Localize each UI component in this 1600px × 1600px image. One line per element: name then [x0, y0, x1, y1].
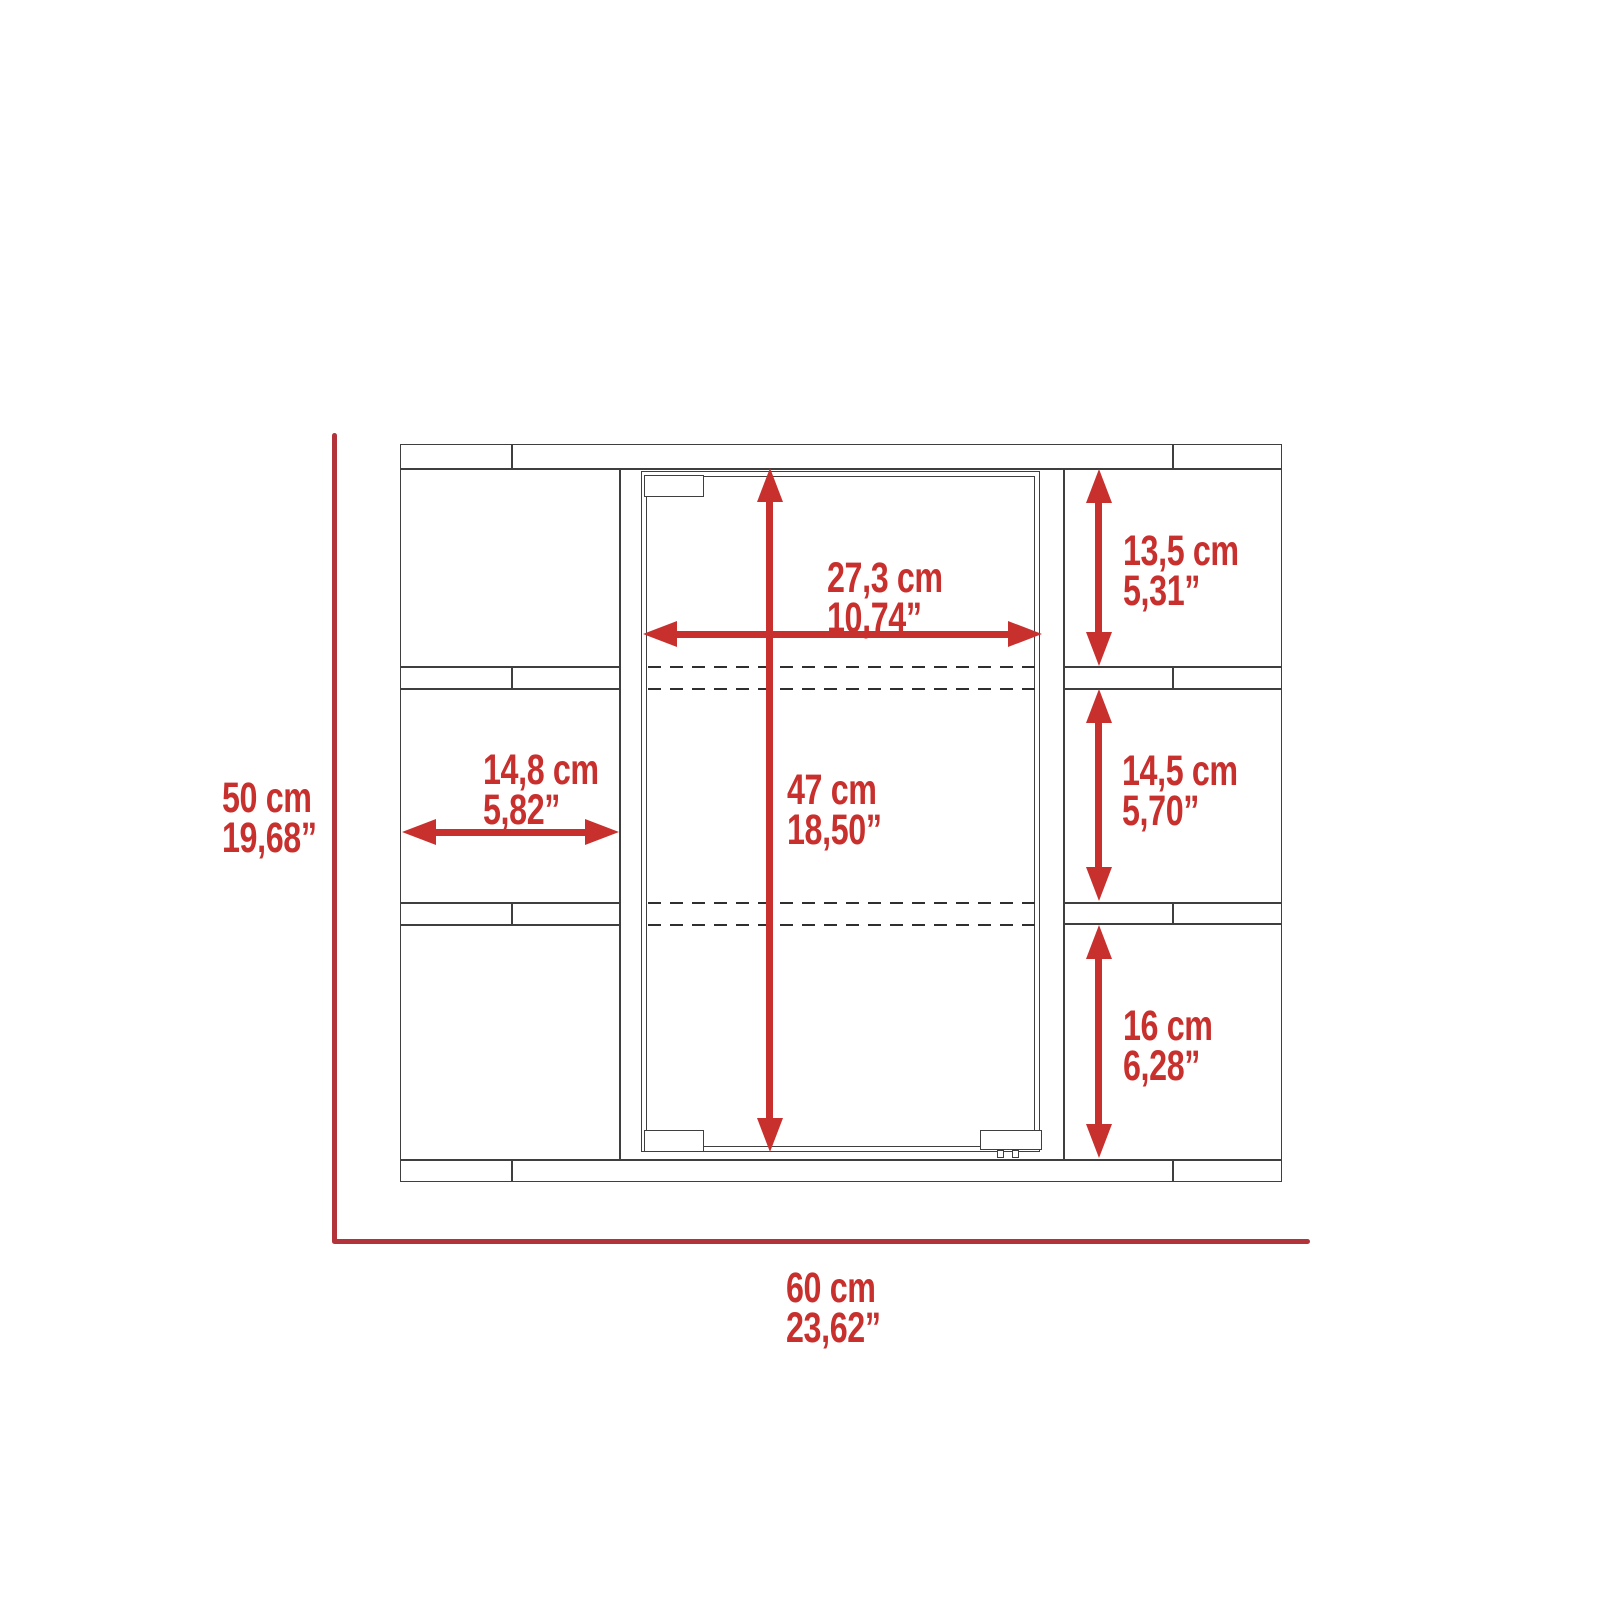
arrow-shaft	[766, 496, 773, 1124]
metric-value: 60 cm	[786, 1268, 881, 1308]
hidden-shelf2-dash-top	[648, 902, 1035, 904]
imperial-value: 6,28”	[1123, 1046, 1213, 1086]
hidden-shelf2-dash-bottom	[648, 924, 1035, 926]
dim-label-left-shelf-width: 14,8 cm 5,82”	[483, 750, 599, 830]
dim-label-overall-height: 50 cm 19,68”	[222, 778, 317, 858]
dim-label-right-top-shelf: 13,5 cm 5,31”	[1123, 531, 1239, 611]
right-shelf1-joint	[1172, 666, 1174, 688]
imperial-value: 18,50”	[787, 810, 882, 850]
imperial-value: 5,70”	[1122, 791, 1238, 831]
height-axis-line	[332, 433, 337, 1243]
imperial-value: 23,62”	[786, 1308, 881, 1348]
metric-value: 14,8 cm	[483, 750, 599, 790]
metric-value: 14,5 cm	[1122, 751, 1238, 791]
diagram-canvas: 50 cm 19,68” 60 cm 23,62” 27,3 cm 10,74”…	[0, 0, 1600, 1600]
imperial-value: 5,31”	[1123, 571, 1239, 611]
metric-value: 13,5 cm	[1123, 531, 1239, 571]
hidden-shelf1-dash-bottom	[648, 688, 1035, 690]
dim-label-right-middle-shelf: 14,5 cm 5,70”	[1122, 751, 1238, 831]
left-column-divider	[619, 468, 621, 1159]
top-panel-joint-left	[511, 444, 513, 468]
imperial-value: 10,74”	[827, 598, 943, 638]
left-shelf2-bottom	[400, 924, 621, 926]
hidden-shelf1-dash-top	[648, 666, 1035, 668]
right-shelf2-joint	[1172, 902, 1174, 923]
top-panel-bottom-line	[400, 468, 1282, 470]
width-axis-line	[332, 1239, 1310, 1244]
left-shelf2-joint	[511, 902, 513, 924]
left-shelf1-joint	[511, 666, 513, 688]
arrowhead-right-icon	[1008, 621, 1042, 647]
dim-label-door-width: 27,3 cm 10,74”	[827, 558, 943, 638]
left-shelf1-bottom	[400, 688, 621, 690]
door-handle-foot-right	[1012, 1150, 1019, 1158]
dim-label-overall-width: 60 cm 23,62”	[786, 1268, 881, 1348]
bottom-panel-top-line	[400, 1159, 1282, 1161]
door-hinge-bottom	[644, 1130, 704, 1152]
bottom-panel-joint-right	[1172, 1159, 1174, 1182]
arrow-shaft	[1095, 497, 1102, 638]
metric-value: 16 cm	[1123, 1006, 1213, 1046]
arrow-shaft	[1095, 953, 1102, 1132]
bottom-panel-joint-left	[511, 1159, 513, 1182]
dim-label-right-bottom-shelf: 16 cm 6,28”	[1123, 1006, 1213, 1086]
door-hinge-top	[644, 475, 704, 497]
metric-value: 50 cm	[222, 778, 317, 818]
metric-value: 27,3 cm	[827, 558, 943, 598]
dim-label-door-height: 47 cm 18,50”	[787, 770, 882, 850]
right-column-divider	[1063, 468, 1065, 1159]
imperial-value: 5,82”	[483, 790, 599, 830]
arrowhead-left-icon	[643, 621, 677, 647]
door-handle-foot-left	[997, 1150, 1004, 1158]
arrow-shaft	[1095, 717, 1102, 873]
top-panel-joint-right	[1172, 444, 1174, 468]
door-handle	[980, 1130, 1042, 1150]
metric-value: 47 cm	[787, 770, 882, 810]
imperial-value: 19,68”	[222, 818, 317, 858]
